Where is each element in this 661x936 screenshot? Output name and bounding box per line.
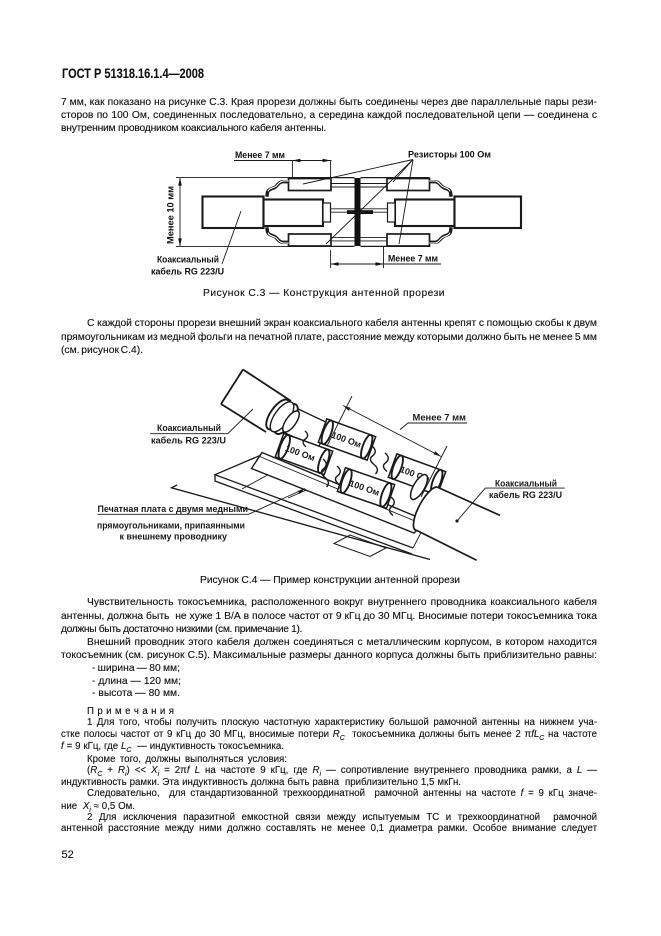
svg-text:Коаксиальный: Коаксиальный [157,255,219,265]
svg-text:Коаксиальный: Коаксиальный [157,423,221,433]
svg-text:Менее 7 мм: Менее 7 мм [235,150,285,160]
svg-text:к внешнему проводнику: к внешнему проводнику [120,532,228,542]
svg-text:кабель RG 223/U: кабель RG 223/U [151,435,226,445]
svg-text:Печатная плата с двумя медными: Печатная плата с двумя медными [98,504,249,514]
svg-text:Менее 10 мм: Менее 10 мм [166,186,176,244]
svg-text:прямоугольниками, припаянными: прямоугольниками, припаянными [97,521,245,531]
svg-text:кабель RG 223/U: кабель RG 223/U [489,490,562,500]
svg-text:Коаксиальный: Коаксиальный [495,479,557,489]
svg-text:кабель RG 223/U: кабель RG 223/U [151,267,224,277]
svg-text:Менее 7 мм: Менее 7 мм [413,412,467,422]
svg-text:Менее 7 мм: Менее 7 мм [388,254,438,264]
svg-text:Резисторы 100 Ом: Резисторы 100 Ом [408,150,491,160]
